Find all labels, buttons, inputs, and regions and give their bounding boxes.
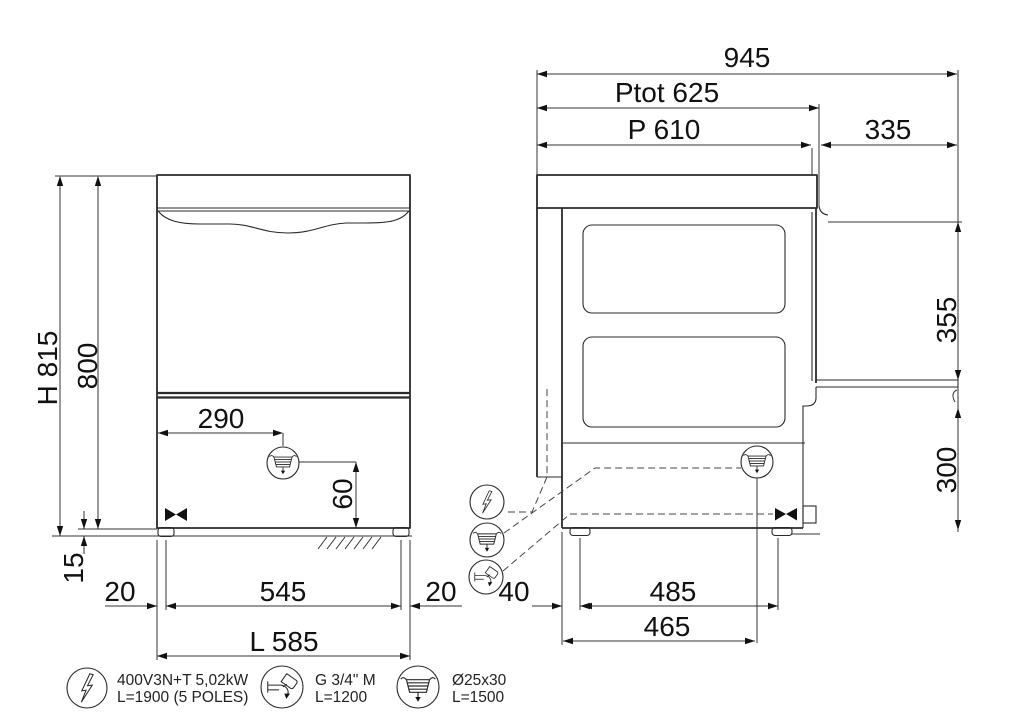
drain-line (504, 468, 741, 533)
floor-hatch (318, 537, 381, 549)
dim-height-body: 800 (72, 343, 103, 390)
water-line (503, 514, 773, 571)
technical-drawing-dishwasher: H 815 800 15 290 60 20 545 20 (0, 0, 1024, 716)
dim-side-feet-span: 485 (650, 576, 697, 607)
dim-feet-height: 15 (58, 552, 89, 583)
dim-foot-right: 20 (425, 576, 456, 607)
dim-depth-p: P 610 (628, 114, 701, 145)
legend-drain-hose: L=1500 (452, 689, 505, 706)
front-body (157, 175, 410, 528)
drawing-canvas: H 815 800 15 290 60 20 545 20 (0, 0, 1024, 716)
dim-door-height: 300 (931, 447, 962, 494)
legend-electric-cable: L=1900 (5 POLES) (117, 689, 248, 706)
electric-icon (470, 485, 504, 519)
legend-water-spec: G 3/4" M (315, 672, 376, 689)
dim-clearance-top: 355 (931, 297, 962, 344)
water-valve-icon-side (775, 508, 797, 521)
side-dimensions: 945 Ptot 625 P 610 335 355 300 40 485 (498, 42, 962, 645)
side-view (469, 175, 958, 643)
electric-legend-icon (67, 668, 107, 708)
legend: 400V3N+T 5,02kW L=1900 (5 POLES) G 3/4" … (67, 666, 507, 708)
dim-side-drain-offset: 465 (644, 611, 691, 642)
dim-back-offset: 40 (498, 576, 529, 607)
water-valve-icon (165, 508, 187, 521)
door-panel-lower (583, 337, 785, 427)
front-view (52, 175, 412, 549)
dim-width-total: L 585 (249, 626, 318, 657)
dim-foot-left: 20 (104, 576, 135, 607)
electric-line (508, 385, 547, 512)
legend-water-hose: L=1200 (315, 689, 368, 706)
hinge-curve (819, 206, 828, 215)
dim-door-extension: 335 (865, 114, 912, 145)
dim-drain-height: 60 (327, 478, 358, 509)
inlet-fitting (803, 506, 816, 523)
side-top-band (537, 175, 817, 208)
legend-drain-spec: Ø25x30 (452, 672, 507, 689)
front-dimensions: H 815 800 15 290 60 20 545 20 (32, 176, 462, 660)
door-panel-upper (583, 225, 785, 313)
dim-depth-total: 945 (724, 42, 771, 73)
door-handle-curve (158, 211, 409, 233)
dim-depth-ptot: Ptot 625 (615, 77, 719, 108)
dim-drain-offset: 290 (198, 403, 245, 434)
dim-feet-span: 545 (260, 576, 307, 607)
dim-height-total: H 815 (32, 331, 63, 406)
drain-callout-icon (470, 523, 504, 557)
legend-electric-spec: 400V3N+T 5,02kW (117, 672, 248, 689)
side-lower-front (803, 387, 816, 528)
